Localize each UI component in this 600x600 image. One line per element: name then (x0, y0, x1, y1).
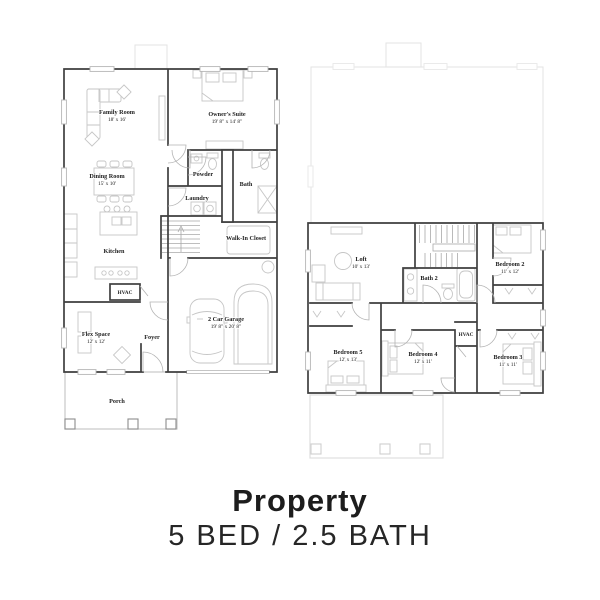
garage-door (186, 371, 270, 374)
water-heater (262, 261, 274, 273)
room-dims-loft: 10' x 13' (352, 264, 370, 270)
room-label-garage: 2 Car Garage (208, 316, 244, 323)
room-dims-bedroom4: 12' x 11' (414, 359, 432, 365)
room-dims-garage: 19' 8" x 20' 8" (211, 324, 242, 330)
room-label-laundry: Laundry (185, 195, 209, 202)
room-label-hvac: HVAC (118, 290, 133, 296)
porch-post (380, 444, 390, 454)
room-label-bedroom5: Bedroom 5 (334, 349, 363, 356)
room-label-powder: Powder (193, 171, 214, 178)
floor1-chimney-outline (135, 45, 167, 69)
porch-post (166, 419, 176, 429)
dresser (206, 141, 243, 149)
room-dims-owners-suite: 19' 8" x 14' 8" (212, 119, 243, 125)
room-dims-flex-space: 12' x 12' (87, 339, 105, 345)
room-label-loft: Loft (355, 256, 367, 263)
room-label-walk-in-closet: Walk-In Closet (226, 235, 267, 242)
room-label-bedroom3: Bedroom 3 (494, 354, 523, 361)
media-console (159, 96, 165, 140)
room-label-foyer: Foyer (144, 334, 160, 341)
property-title: Property (0, 483, 600, 519)
owners-suite-bed (193, 70, 252, 149)
room-label-family-room: Family Room (99, 109, 136, 116)
floor-plan-image: Family Room 18' x 16' Owner's Suite 19' … (0, 0, 600, 480)
room-label-porch: Porch (109, 398, 125, 405)
room-label-owners-suite: Owner's Suite (208, 111, 246, 118)
porch-post (420, 444, 430, 454)
floor2-porch-outline (310, 395, 443, 458)
bath-fixtures (258, 153, 277, 213)
bedroom5-bed (326, 361, 366, 392)
room-label-dining-room: Dining Room (89, 173, 125, 180)
first-floor-plan: Family Room 18' x 16' Owner's Suite 19' … (62, 45, 280, 429)
second-floor-plan: Loft 10' x 13' Bath 2 Bedroom 2 11' x 12… (306, 43, 546, 458)
room-dims-bedroom5: 12' x 13' (339, 357, 357, 363)
bedroom2-bed (493, 225, 531, 253)
room-label-kitchen: Kitchen (104, 248, 126, 255)
room-dims-dining-room: 15' x 10' (98, 181, 116, 187)
room-label-bedroom2: Bedroom 2 (496, 261, 525, 268)
kitchen-island (100, 206, 137, 235)
room-label-bedroom4: Bedroom 4 (409, 351, 438, 358)
room-label-flex-space: Flex Space (82, 331, 111, 338)
floor2-roof-outline (308, 43, 543, 223)
powder-fixtures (191, 153, 218, 170)
washer-dryer (191, 202, 216, 215)
floor2-staircase (420, 225, 476, 267)
room-dims-family-room: 18' x 16' (108, 117, 126, 123)
room-dims-bedroom2: 11' x 12' (501, 269, 519, 275)
room-label-hvac2: HVAC (459, 332, 474, 338)
garage-cars (187, 261, 274, 364)
porch-post (311, 444, 321, 454)
floor1-plumbing-wall (222, 150, 233, 222)
porch-post (65, 419, 75, 429)
bed-bath-summary: 5 BED / 2.5 BATH (0, 520, 600, 553)
room-label-bath: Bath (240, 181, 253, 188)
floor-plan-sheet: Family Room 18' x 16' Owner's Suite 19' … (0, 0, 600, 600)
room-dims-bedroom3: 11' x 11' (499, 362, 517, 368)
room-label-bath2: Bath 2 (420, 275, 437, 282)
porch-post (128, 419, 138, 429)
floor2-labels: Loft 10' x 13' Bath 2 Bedroom 2 11' x 12… (334, 256, 525, 368)
